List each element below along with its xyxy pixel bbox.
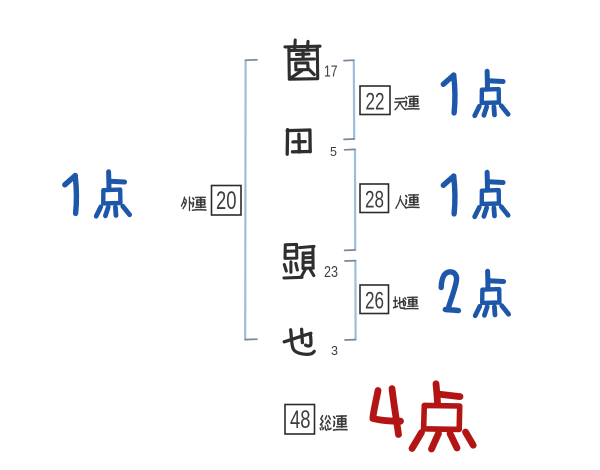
svg-text:5: 5 [330,145,337,159]
svg-text:23: 23 [324,264,338,281]
svg-text:48: 48 [290,406,311,434]
svg-text:20: 20 [216,187,237,215]
svg-text:17: 17 [324,64,338,81]
svg-text:26: 26 [365,288,384,315]
svg-text:22: 22 [366,89,385,116]
svg-text:28: 28 [365,187,384,214]
svg-text:3: 3 [331,344,338,358]
